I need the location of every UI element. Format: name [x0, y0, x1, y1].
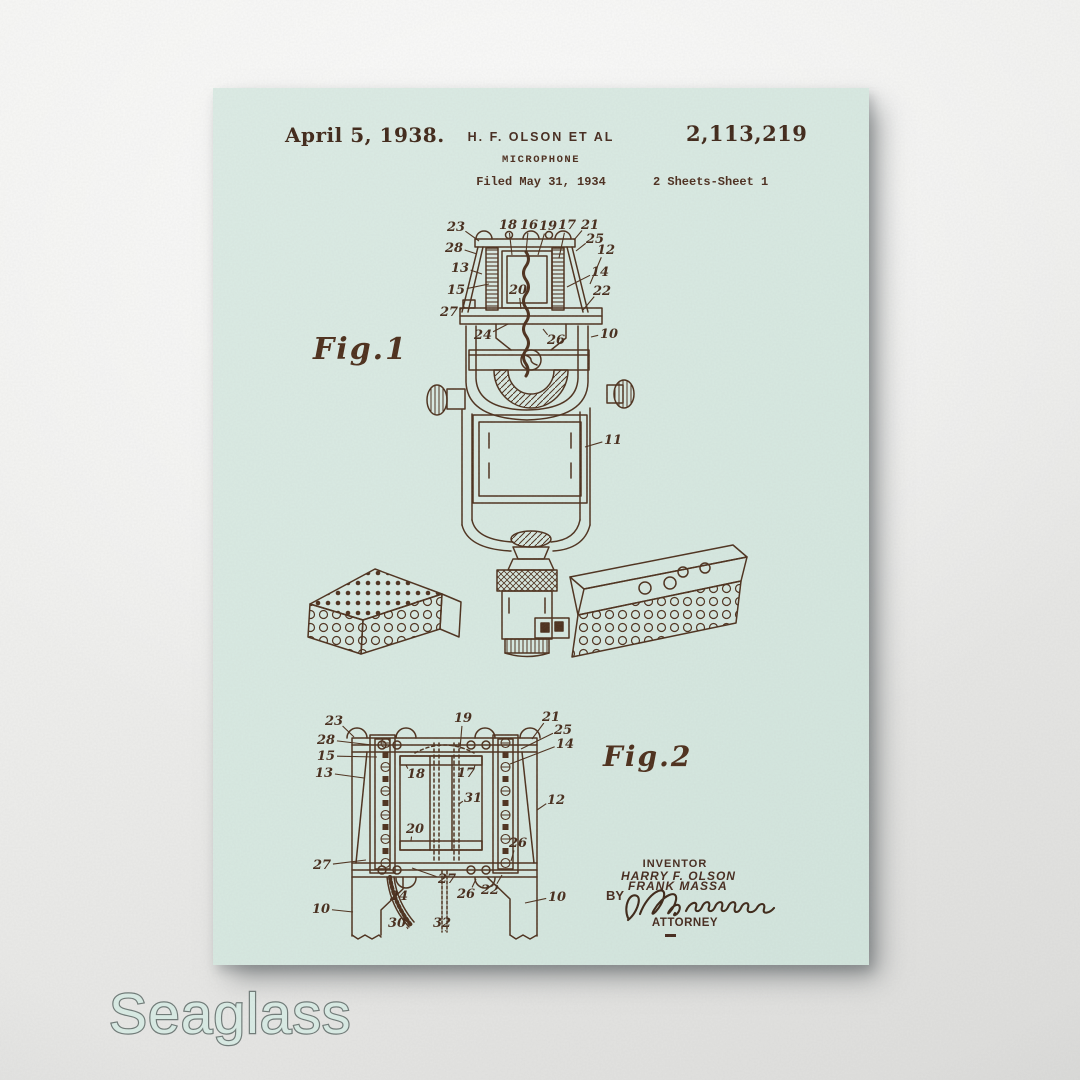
svg-text:27: 27	[437, 872, 456, 887]
svg-text:13: 13	[315, 766, 333, 781]
svg-text:24: 24	[473, 328, 492, 343]
svg-text:26: 26	[546, 333, 565, 348]
patent-drawing: 23181619172128251213141520222724261011 2…	[213, 88, 869, 965]
svg-text:21: 21	[580, 218, 599, 233]
svg-text:24: 24	[389, 889, 408, 904]
svg-text:15: 15	[447, 283, 465, 298]
patent-number: 2,113,219	[686, 121, 807, 146]
brand-label: Seaglass	[109, 982, 352, 1046]
svg-text:17: 17	[558, 218, 576, 233]
svg-text:10: 10	[548, 890, 566, 905]
svg-text:30: 30	[388, 916, 406, 931]
patent-title: MICROPHONE	[213, 154, 869, 166]
attorney-underline	[665, 934, 676, 937]
svg-text:23: 23	[446, 220, 465, 235]
patent-filed-line: Filed May 31, 1934	[213, 175, 869, 189]
attorney-signature	[618, 880, 793, 926]
fig1-label: Fig.1	[313, 332, 408, 367]
svg-text:27: 27	[439, 305, 458, 320]
svg-text:20: 20	[508, 283, 527, 298]
svg-text:18: 18	[407, 767, 425, 782]
svg-text:12: 12	[547, 793, 565, 808]
svg-text:11: 11	[604, 433, 622, 448]
svg-text:32: 32	[433, 916, 451, 931]
svg-text:22: 22	[592, 284, 611, 299]
patent-poster: April 5, 1938. H. F. OLSON ET AL 2,113,2…	[213, 88, 869, 965]
svg-text:28: 28	[444, 241, 463, 256]
svg-text:10: 10	[600, 327, 618, 342]
svg-text:28: 28	[316, 733, 335, 748]
svg-text:17: 17	[457, 766, 475, 781]
svg-text:26: 26	[508, 836, 527, 851]
svg-text:25: 25	[553, 723, 572, 738]
patent-sheets-line: 2 Sheets-Sheet 1	[653, 175, 768, 189]
svg-text:20: 20	[405, 822, 424, 837]
svg-text:13: 13	[451, 261, 469, 276]
svg-text:19: 19	[539, 219, 557, 234]
svg-text:31: 31	[464, 791, 482, 806]
svg-text:14: 14	[556, 737, 574, 752]
svg-text:10: 10	[312, 902, 330, 917]
svg-text:26: 26	[456, 887, 475, 902]
svg-text:27: 27	[312, 858, 331, 873]
svg-text:19: 19	[454, 711, 472, 726]
svg-text:12: 12	[597, 243, 615, 258]
brand-watermark: Seaglass	[103, 973, 443, 1068]
svg-text:15: 15	[317, 749, 335, 764]
fig2-label: Fig.2	[603, 740, 692, 773]
fig2-drawing	[347, 728, 540, 939]
svg-text:18: 18	[499, 218, 517, 233]
fig1-drawing	[308, 231, 747, 657]
svg-text:16: 16	[520, 218, 538, 233]
svg-text:14: 14	[591, 265, 609, 280]
svg-text:22: 22	[480, 883, 499, 898]
svg-text:23: 23	[324, 714, 343, 729]
